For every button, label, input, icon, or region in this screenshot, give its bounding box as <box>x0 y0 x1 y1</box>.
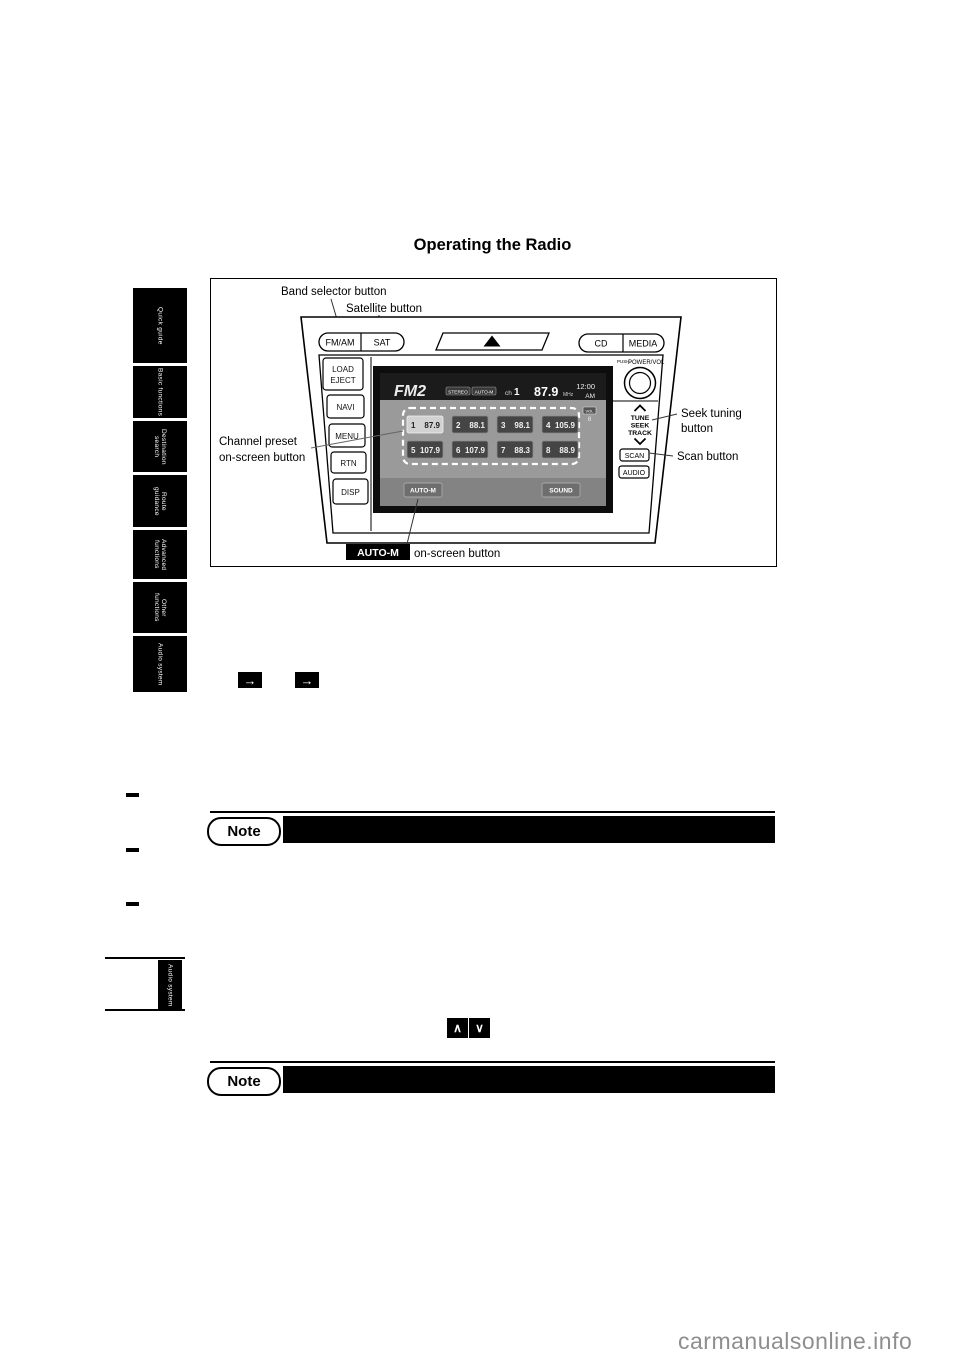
chapter-tab-label: Basic functions <box>157 368 164 416</box>
power-volume-knob-inner <box>630 373 651 394</box>
note-text-bar <box>283 1066 775 1093</box>
svg-text:8: 8 <box>546 446 551 455</box>
margin-dash <box>126 848 139 852</box>
chapter-tab: Basic functions <box>133 366 187 418</box>
preset-button-3: 3 98.1 <box>497 416 533 433</box>
channel-label: ch <box>505 390 512 397</box>
navi-label: NAVI <box>336 403 354 412</box>
svg-text:88.3: 88.3 <box>514 446 530 455</box>
seek-down-key-icon: ∨ <box>469 1018 490 1038</box>
preset-button-6: 6 107.9 <box>452 441 488 458</box>
chapter-tab-label: Destination search <box>153 422 167 470</box>
frequency-unit: MHz <box>563 392 574 398</box>
svg-text:87.9: 87.9 <box>424 421 440 430</box>
preset-button-2: 2 88.1 <box>452 416 488 433</box>
audio-label: AUDIO <box>623 470 646 477</box>
seek-tuning-label: Seek tuning <box>681 408 742 420</box>
clock-ampm: AM <box>585 393 595 400</box>
preset-button-4: 4 105.9 <box>542 416 578 433</box>
clock-time: 12:00 <box>576 382 595 391</box>
chapter-tab-label: Audio system <box>157 643 164 686</box>
down-chevron-glyph: ∨ <box>475 1021 484 1035</box>
track-label: TRACK <box>628 430 652 437</box>
radio-diagram: Band selector button Satellite button FM… <box>211 279 776 566</box>
satellite-label: Satellite button <box>346 303 422 315</box>
load-label: LOAD <box>332 365 354 374</box>
power-vol-label: POWER/VOL <box>628 360 665 366</box>
svg-text:5: 5 <box>411 446 416 455</box>
svg-text:3: 3 <box>501 421 506 430</box>
auto-m-callout-text: on-screen button <box>414 548 500 560</box>
svg-text:4: 4 <box>546 421 551 430</box>
section-tab: Audio system <box>158 960 182 1010</box>
preset-button-8: 8 88.9 <box>542 441 578 458</box>
chapter-tab: Destination search <box>133 421 187 472</box>
page-jump-arrow-icon: → <box>295 672 319 688</box>
chapter-tab-label: Other functions <box>153 583 167 631</box>
chapter-tab: Advanced functions <box>133 530 187 579</box>
scan-label: SCAN <box>625 453 644 460</box>
sound-onscreen-label: SOUND <box>549 488 573 495</box>
note-capsule: Note <box>207 817 281 846</box>
preset-button-5: 5 107.9 <box>407 441 443 458</box>
tune-label: TUNE <box>631 415 650 422</box>
section-rule <box>105 957 185 959</box>
auto-memory-badge-label: AUTO-M <box>475 390 494 396</box>
svg-text:98.1: 98.1 <box>514 421 530 430</box>
sat-button: SAT <box>374 338 391 348</box>
channel-value: 1 <box>514 387 520 398</box>
load-eject-button <box>323 358 363 390</box>
svg-text:7: 7 <box>501 446 506 455</box>
svg-text:6: 6 <box>456 446 461 455</box>
watermark-link[interactable]: carmanualsonline.info <box>678 1328 948 1355</box>
arrow-glyph: → <box>244 673 257 688</box>
svg-text:107.9: 107.9 <box>420 446 441 455</box>
margin-dash <box>126 793 139 797</box>
note-rule <box>210 811 775 813</box>
seek-up-key-icon: ∧ <box>447 1018 468 1038</box>
svg-text:88.9: 88.9 <box>559 446 575 455</box>
preset-button-1: 1 87.9 <box>407 416 443 433</box>
manual-page: Quick guide Basic functions Destination … <box>0 0 960 1358</box>
page-jump-arrow-icon: → <box>238 672 262 688</box>
up-chevron-glyph: ∧ <box>453 1021 462 1035</box>
section-tab-label: Audio system <box>167 964 174 1007</box>
chapter-tab: Route guidance <box>133 475 187 527</box>
svg-text:2: 2 <box>456 421 461 430</box>
rtn-label: RTN <box>340 459 357 468</box>
seek-tuning-label-2: button <box>681 423 713 435</box>
chapter-tab-label: Advanced functions <box>153 531 167 578</box>
media-button: MEDIA <box>629 339 658 349</box>
note-text-bar <box>283 816 775 843</box>
chapter-tab-label: Quick guide <box>157 307 164 345</box>
band-selector-label: Band selector button <box>281 286 387 298</box>
band-display: FM2 <box>394 383 426 400</box>
cd-button: CD <box>595 339 608 349</box>
stereo-badge-label: STEREO <box>448 390 468 396</box>
scan-callout-label: Scan button <box>677 451 738 463</box>
channel-preset-label: Channel preset <box>219 436 298 448</box>
disp-label: DISP <box>341 488 360 497</box>
svg-text:1: 1 <box>411 421 416 430</box>
channel-preset-label-2: on-screen button <box>219 452 305 464</box>
chapter-tab: Other functions <box>133 582 187 633</box>
chapter-tab: Quick guide <box>133 288 187 363</box>
svg-text:105.9: 105.9 <box>555 421 576 430</box>
chapter-tab-label: Route guidance <box>153 476 167 525</box>
preset-button-7: 7 88.3 <box>497 441 533 458</box>
note-rule <box>210 1061 775 1063</box>
radio-figure: Band selector button Satellite button FM… <box>210 278 777 567</box>
svg-text:107.9: 107.9 <box>465 446 486 455</box>
svg-text:88.1: 88.1 <box>469 421 485 430</box>
note-capsule: Note <box>207 1067 281 1096</box>
chapter-tab: Audio system <box>133 636 187 692</box>
page-title: Operating the Radio <box>210 236 775 255</box>
frequency-value: 87.9 <box>534 385 558 399</box>
section-rule <box>105 1009 185 1011</box>
arrow-glyph: → <box>301 673 314 688</box>
auto-m-onscreen-label: AUTO-M <box>410 488 436 495</box>
fm-am-button: FM/AM <box>326 338 355 348</box>
seek-label: SEEK <box>631 423 650 430</box>
eject-label: EJECT <box>330 376 355 385</box>
volume-label: VOL <box>585 408 594 413</box>
auto-m-callout-badge: AUTO-M <box>357 547 399 559</box>
margin-dash <box>126 902 139 906</box>
